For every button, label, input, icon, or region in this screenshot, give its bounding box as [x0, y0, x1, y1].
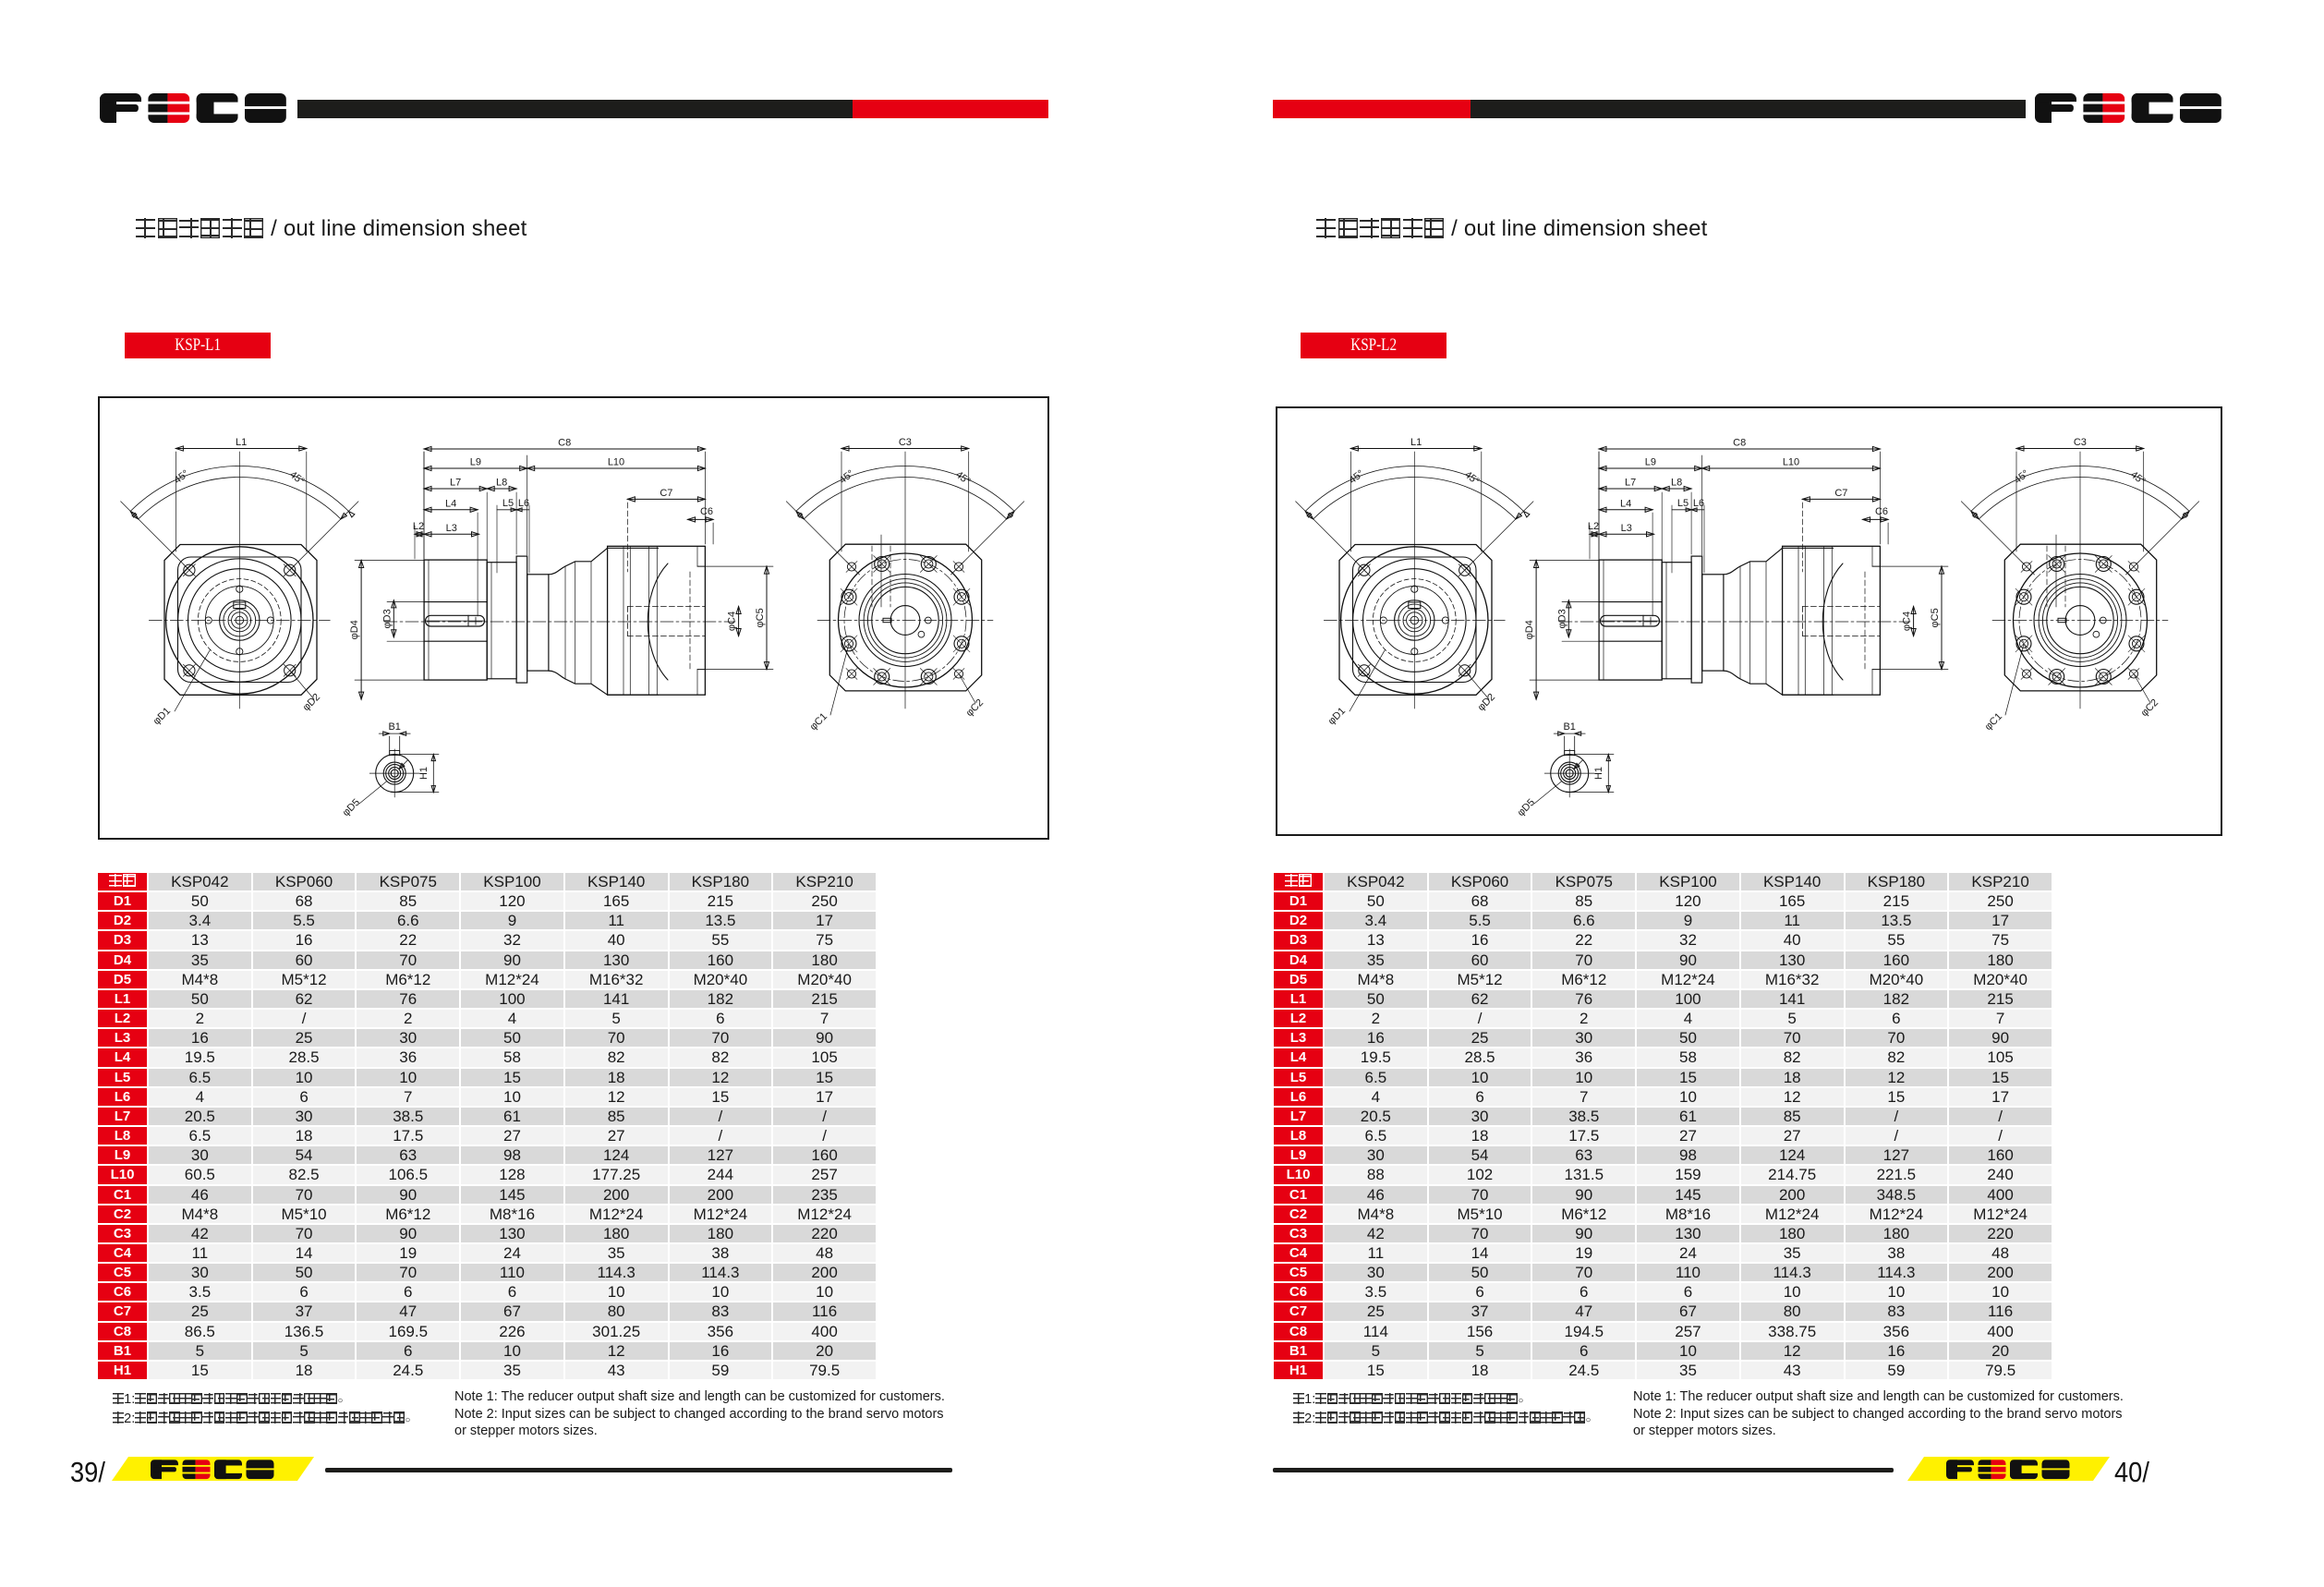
svg-text:L9: L9 — [470, 457, 481, 468]
svg-text:45°: 45° — [953, 469, 973, 488]
svg-text:45°: 45° — [287, 469, 307, 488]
svg-text:φD4: φD4 — [1524, 620, 1535, 639]
svg-text:45°: 45° — [172, 468, 191, 487]
svg-text:φC2: φC2 — [964, 697, 986, 719]
svg-text:45°: 45° — [1347, 468, 1366, 487]
svg-text:L1: L1 — [236, 437, 247, 448]
svg-text:C8: C8 — [558, 438, 571, 449]
svg-text:45°: 45° — [2012, 468, 2031, 487]
svg-text:φC1: φC1 — [808, 711, 829, 733]
svg-text:C6: C6 — [1875, 506, 1888, 517]
svg-text:45°: 45° — [1462, 469, 1482, 488]
svg-text:φD2: φD2 — [301, 692, 322, 713]
svg-text:C7: C7 — [1834, 488, 1847, 499]
svg-text:L5: L5 — [1677, 498, 1689, 509]
svg-text:C7: C7 — [660, 488, 672, 499]
svg-text:L1: L1 — [1410, 437, 1422, 448]
svg-text:L3: L3 — [446, 523, 457, 534]
svg-text:φC5: φC5 — [755, 608, 766, 627]
svg-text:L8: L8 — [1671, 478, 1682, 489]
svg-text:φD4: φD4 — [349, 620, 360, 639]
svg-text:L4: L4 — [445, 498, 456, 509]
svg-text:φD3: φD3 — [381, 609, 393, 628]
svg-text:B1: B1 — [1563, 721, 1575, 733]
svg-text:L9: L9 — [1645, 457, 1656, 468]
svg-text:C8: C8 — [1733, 438, 1746, 449]
svg-text:φC5: φC5 — [1930, 608, 1941, 627]
svg-text:C6: C6 — [700, 506, 713, 517]
svg-text:L5: L5 — [502, 498, 514, 509]
svg-text:H1: H1 — [1593, 767, 1604, 780]
svg-text:L3: L3 — [1621, 523, 1632, 534]
svg-text:φD5: φD5 — [341, 797, 362, 818]
svg-text:φC4: φC4 — [727, 612, 738, 631]
svg-text:L10: L10 — [1783, 457, 1799, 468]
svg-text:C3: C3 — [899, 437, 912, 448]
svg-text:φC2: φC2 — [2139, 697, 2161, 719]
svg-text:φC4: φC4 — [1902, 612, 1913, 631]
svg-text:B1: B1 — [388, 721, 400, 733]
svg-text:φD1: φD1 — [151, 706, 173, 727]
svg-text:C3: C3 — [2074, 437, 2087, 448]
svg-text:45°: 45° — [2128, 469, 2148, 488]
svg-text:L4: L4 — [1620, 498, 1631, 509]
svg-text:φD3: φD3 — [1556, 609, 1567, 628]
svg-text:L8: L8 — [496, 478, 507, 489]
svg-text:L7: L7 — [450, 478, 461, 489]
svg-text:L6: L6 — [1693, 498, 1704, 509]
svg-text:φD5: φD5 — [1516, 797, 1537, 818]
svg-text:H1: H1 — [418, 767, 430, 780]
svg-text:φD1: φD1 — [1326, 706, 1348, 727]
svg-text:φD2: φD2 — [1476, 692, 1497, 713]
svg-text:L6: L6 — [518, 498, 529, 509]
svg-text:L7: L7 — [1625, 478, 1636, 489]
svg-text:φC1: φC1 — [1983, 711, 2004, 733]
svg-text:45°: 45° — [837, 468, 856, 487]
svg-text:L10: L10 — [608, 457, 624, 468]
